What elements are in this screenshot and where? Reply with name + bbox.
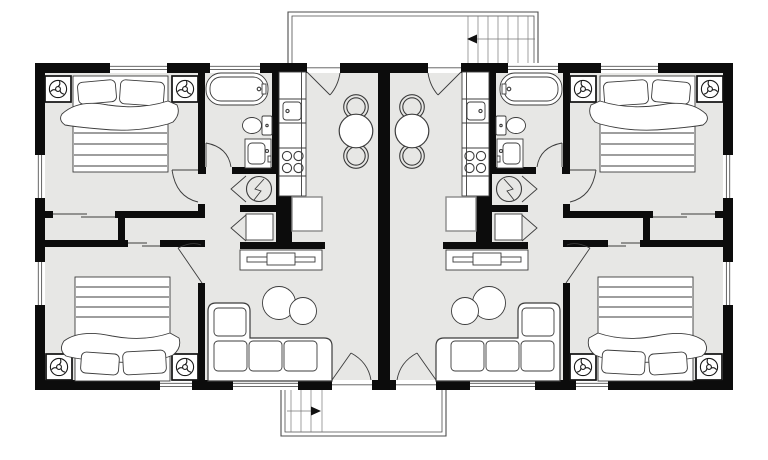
deck-floor xyxy=(288,12,538,63)
ceiling-fan-icon xyxy=(46,354,72,380)
ceiling-fan-icon xyxy=(172,354,198,380)
wall-segment xyxy=(118,218,125,240)
window xyxy=(210,63,260,73)
sofa-cushion xyxy=(249,341,282,371)
dining-table xyxy=(339,114,373,148)
refrigerator xyxy=(292,197,322,231)
double-bed xyxy=(61,277,179,381)
toilet-tank xyxy=(262,116,272,135)
exterior-wall-left xyxy=(35,63,45,390)
floor-plan-drawing xyxy=(0,0,768,460)
window xyxy=(110,63,167,73)
tv-console xyxy=(240,250,322,270)
back-door-threshold xyxy=(307,63,340,73)
wall-segment xyxy=(44,211,53,218)
faucet-icon xyxy=(262,84,266,94)
window xyxy=(35,155,45,198)
pillow xyxy=(80,352,119,376)
floor-plan-page xyxy=(0,0,768,460)
toilet-bowl xyxy=(243,118,262,134)
sink-basin xyxy=(248,143,265,164)
wall-segment xyxy=(240,205,283,212)
kitchen-counter xyxy=(279,72,306,196)
window xyxy=(160,380,192,390)
pillow xyxy=(77,79,117,104)
washer-unit xyxy=(246,214,273,240)
front-door-threshold xyxy=(332,380,372,390)
wall-segment xyxy=(272,63,279,174)
party-wall-center xyxy=(378,63,390,390)
kitchen-sink xyxy=(283,102,301,120)
sofa-cushion xyxy=(284,341,317,371)
wall-segment xyxy=(283,193,292,242)
pillow xyxy=(122,350,166,375)
wall-segment xyxy=(198,283,205,380)
wall-segment xyxy=(198,167,206,174)
window xyxy=(35,262,45,305)
vanity-sink xyxy=(245,139,271,168)
coffee-table-round xyxy=(290,298,317,325)
rear-deck xyxy=(288,12,538,63)
double-bed xyxy=(61,76,179,172)
bathtub xyxy=(206,73,268,105)
ceiling-fan-icon xyxy=(172,76,198,102)
ceiling-fan-icon xyxy=(45,76,71,102)
tv-icon xyxy=(267,253,295,265)
wall-segment xyxy=(44,240,128,247)
faucet-handle-icon xyxy=(268,156,271,162)
porch-floor xyxy=(281,390,446,436)
sofa-cushion xyxy=(214,341,247,371)
pillow xyxy=(119,79,165,106)
wall-segment xyxy=(198,63,205,168)
front-porch xyxy=(281,390,446,436)
toilet xyxy=(243,116,273,135)
sofa-cushion xyxy=(214,308,246,336)
wall-segment xyxy=(115,211,205,218)
wall-segment xyxy=(240,242,325,249)
exterior-wall-right xyxy=(723,63,733,390)
